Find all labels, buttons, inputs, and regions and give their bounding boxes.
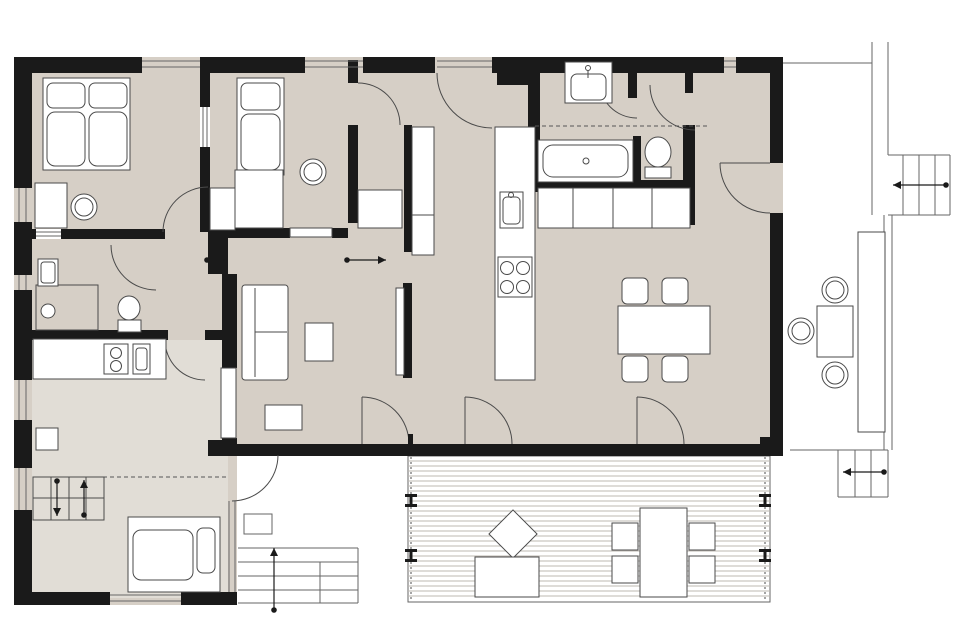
toilet-tank xyxy=(645,167,671,178)
deck-post-ibeam xyxy=(410,551,413,560)
wall-west xyxy=(14,420,32,468)
wall-bedroom-divider xyxy=(200,73,210,107)
patio-stairs-up-arrow-head xyxy=(270,548,278,556)
porch-stairs-ne-arrow-dot xyxy=(943,182,949,188)
floor-plan-svg xyxy=(0,0,960,640)
bedroom1-mattress xyxy=(47,112,85,166)
wall-corner-se xyxy=(760,437,783,456)
bedroom2-wardrobe xyxy=(210,188,235,230)
section-marker-dot xyxy=(344,257,350,263)
wall-south-main xyxy=(232,444,783,456)
wall-north xyxy=(363,57,435,73)
porch-stairs-se-arrow-head xyxy=(843,468,851,476)
bedroom2-sill-cabinet xyxy=(290,228,332,237)
pocket-door xyxy=(200,107,210,147)
wall-tub-partition xyxy=(633,136,641,182)
wall-bedroom-divider xyxy=(200,147,210,232)
patio-stairs-up-arrow-dot xyxy=(271,607,277,613)
annex-stair-up-arrow-dot xyxy=(81,512,87,518)
deck-chair xyxy=(612,556,638,583)
deck-chair xyxy=(689,556,715,583)
dining-table xyxy=(618,306,710,354)
bedroom2-pillow xyxy=(241,83,280,110)
pass-through xyxy=(36,229,61,239)
wall-bedroom2-south xyxy=(332,228,348,238)
wall-west xyxy=(14,510,32,605)
wall-annex-south xyxy=(14,592,110,605)
annex-nightstand xyxy=(36,428,58,450)
annex-washbasin-bowl xyxy=(41,262,55,283)
deck-dining-table xyxy=(640,508,687,597)
bedroom1-mattress xyxy=(89,112,127,166)
wall-corridor-west xyxy=(348,60,358,83)
wall-annex-east xyxy=(222,274,237,368)
deck-lounger-table xyxy=(475,557,539,597)
annex-toilet-bowl xyxy=(118,296,140,320)
wall-door-stub xyxy=(685,73,693,93)
bedroom1-wardrobe xyxy=(35,183,67,228)
door-jamb-tick xyxy=(408,434,413,444)
bedroom2-wardrobe xyxy=(235,170,283,228)
porch-bench xyxy=(858,232,885,432)
wall-east xyxy=(770,213,783,456)
patio-landing xyxy=(244,514,272,534)
dining-chair xyxy=(662,278,688,304)
wall-door-stub xyxy=(628,73,637,98)
wall-bedroom1-south xyxy=(61,229,165,239)
wall-annex-junction xyxy=(208,440,237,456)
porch-stairs-se-arrow-dot xyxy=(881,469,887,475)
deck-chair xyxy=(689,523,715,550)
wall-corridor-west xyxy=(348,125,358,223)
kitchen-island xyxy=(495,127,535,380)
deck-chair xyxy=(612,523,638,550)
wall-bath-jog xyxy=(497,73,537,85)
deck-post-ibeam xyxy=(410,496,413,505)
annex-stair-down-arrow-dot xyxy=(54,478,60,484)
hall-closet xyxy=(412,127,434,255)
wall-annex-bath-south xyxy=(205,330,226,340)
dining-chair xyxy=(622,278,648,304)
bedroom1-pillow xyxy=(47,83,85,108)
tv-panel xyxy=(396,288,404,375)
wall-west xyxy=(14,57,32,188)
annex-sink-bowl xyxy=(136,348,147,370)
bedroom1-pillow xyxy=(89,83,127,108)
door-arc-annex-entry xyxy=(232,455,278,501)
wall-bedroom1-south xyxy=(20,229,36,239)
bathtub-inner xyxy=(543,145,628,177)
deck xyxy=(408,456,770,602)
coffee-table xyxy=(265,405,302,430)
dining-chair xyxy=(622,356,648,382)
corridor-cabinet xyxy=(358,190,402,228)
deck-post-ibeam xyxy=(764,551,767,560)
floor-plan-page xyxy=(0,0,960,640)
deck-post-ibeam xyxy=(764,496,767,505)
wall-north xyxy=(200,57,305,73)
kitchen-sink-bowl xyxy=(503,197,520,224)
annex-bed-mattress xyxy=(133,530,193,580)
bedroom2-mattress xyxy=(241,114,280,170)
annex-toilet-tank xyxy=(118,320,141,332)
kitchen-cabinet-run xyxy=(538,188,690,228)
section-marker-dot xyxy=(204,257,210,263)
annex-bed-pillow xyxy=(197,528,215,573)
dining-chair xyxy=(662,356,688,382)
wall-annex-south xyxy=(181,592,237,605)
wall-annex-east xyxy=(208,232,228,274)
wall-east xyxy=(770,57,783,163)
wall-north xyxy=(14,57,142,73)
toilet-bowl xyxy=(645,137,671,167)
porch-stairs-ne-arrow-head xyxy=(893,181,901,189)
side-table xyxy=(305,323,333,361)
wall-closet-partition xyxy=(404,125,412,252)
sideboard xyxy=(221,368,236,438)
porch-table xyxy=(817,306,853,357)
annex-shower-head xyxy=(41,304,55,318)
